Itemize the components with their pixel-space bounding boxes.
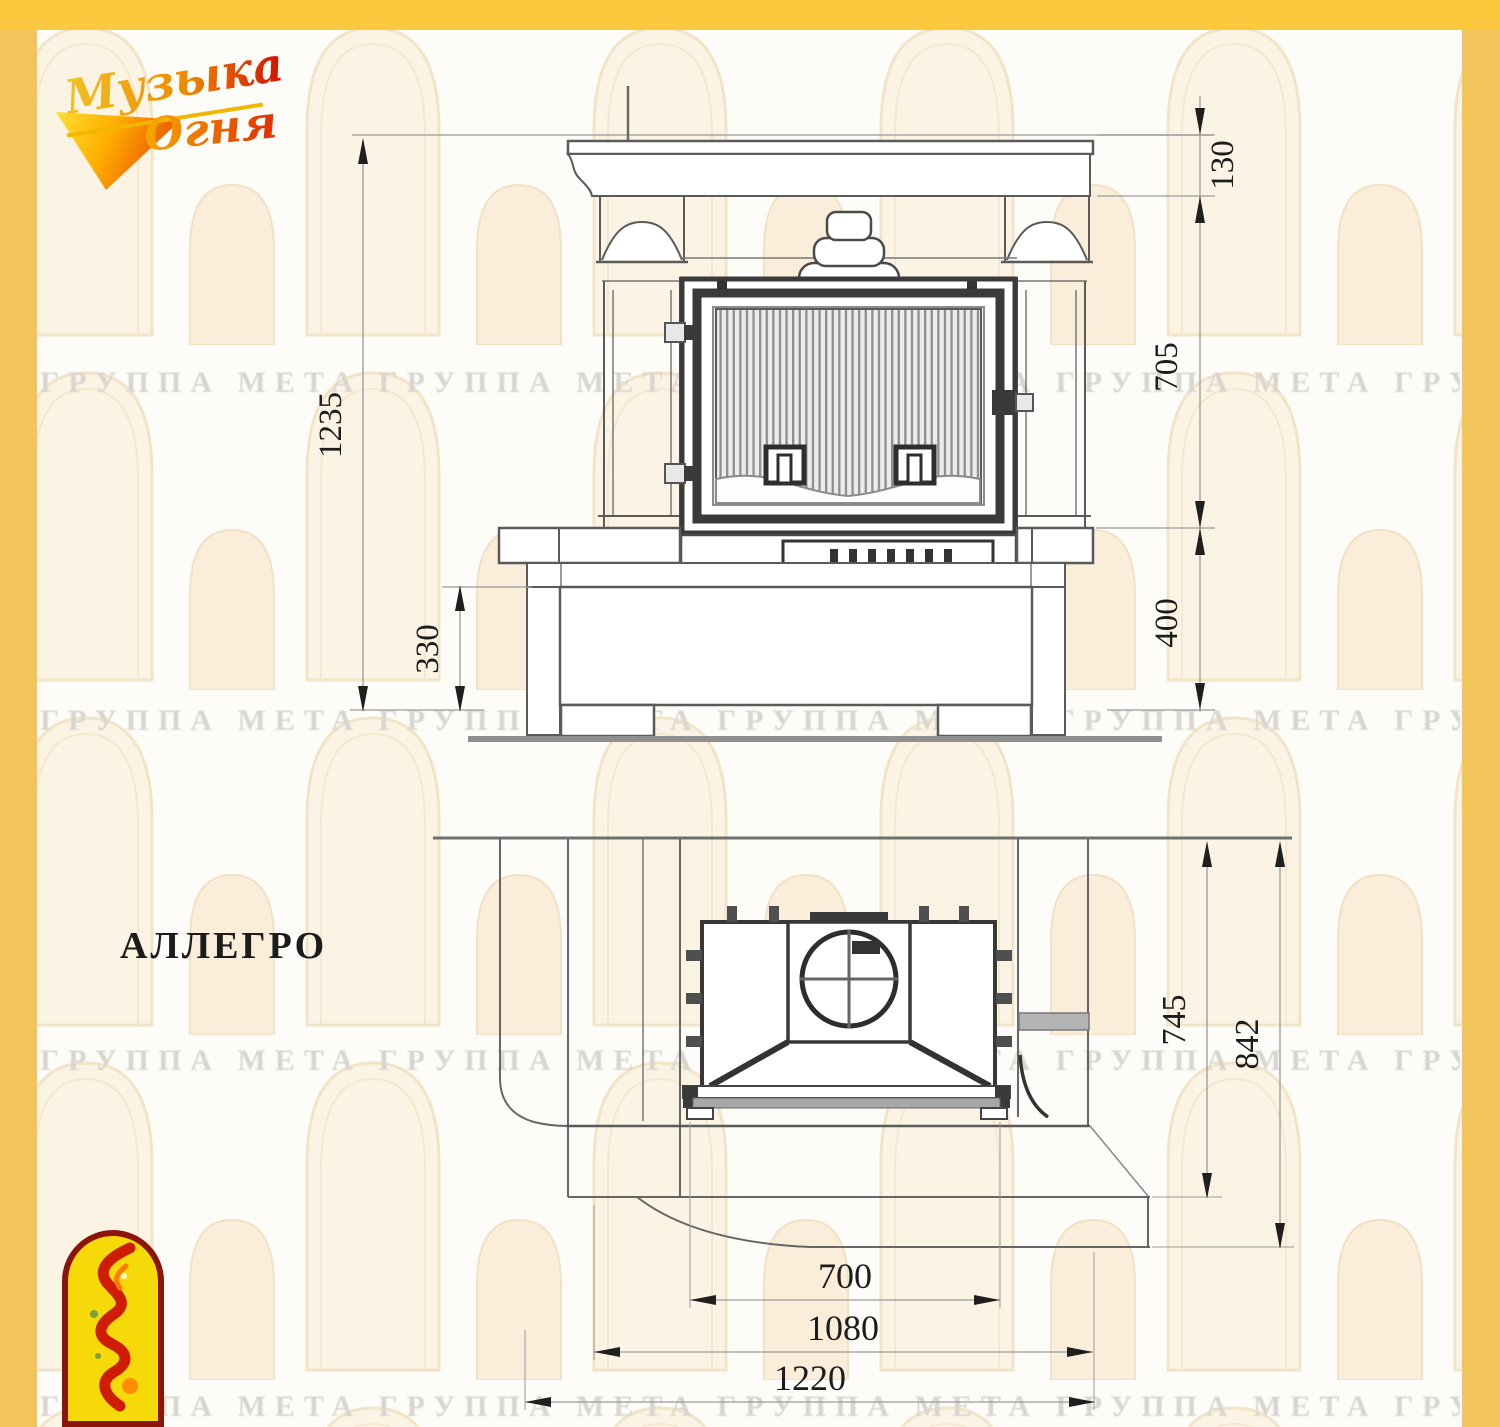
door-glass-grill bbox=[716, 309, 981, 503]
mantel-shelf bbox=[568, 141, 1093, 154]
left-column-capital bbox=[596, 196, 688, 281]
dim-label-plinth-front-height: 330 bbox=[410, 624, 446, 674]
andiron-right bbox=[896, 447, 934, 483]
dim-label-portal-width: 1080 bbox=[807, 1308, 879, 1348]
fireplace-technical-drawing: 1235 330 130 705 400 bbox=[0, 0, 1500, 1427]
page: ГРУППА МЕТА ГРУППА МЕТА ГРУППА МЕТА ГРУП… bbox=[0, 0, 1500, 1427]
mantel-cornice bbox=[568, 154, 1090, 196]
firebox-door bbox=[665, 279, 1033, 533]
andiron-left bbox=[766, 447, 804, 483]
frame-band-top bbox=[0, 0, 1500, 30]
plan-firebox bbox=[683, 906, 1012, 1119]
dim-label-total-height: 1235 bbox=[313, 392, 349, 458]
dim-label-mantel-shelf-height: 130 bbox=[1205, 140, 1241, 190]
page-title: АЛЛЕГРО bbox=[120, 924, 327, 968]
plan-left-outer-edge bbox=[500, 838, 568, 1126]
base-plinth bbox=[527, 563, 1065, 736]
dim-label-total-depth: 842 bbox=[1229, 1019, 1266, 1070]
brand-logo: Музыка Огня bbox=[50, 50, 285, 185]
plan-step-curve bbox=[637, 1197, 810, 1247]
left-column-shaft bbox=[598, 277, 686, 528]
door-handle bbox=[992, 390, 1033, 415]
dim-label-firebox-zone-height: 705 bbox=[1149, 342, 1185, 392]
fire-dancer-emblem-icon bbox=[62, 1230, 164, 1427]
door-screw bbox=[967, 281, 977, 290]
front-view-drawing bbox=[352, 86, 1213, 739]
right-column-capital bbox=[1001, 196, 1093, 281]
plan-right-corner-curve bbox=[1020, 1055, 1048, 1117]
frame-band-right bbox=[1462, 30, 1500, 1427]
plan-door-front bbox=[683, 1086, 1010, 1119]
dim-label-total-width: 1220 bbox=[774, 1358, 846, 1398]
door-screw bbox=[717, 281, 727, 290]
dim-label-firebox-front-width: 700 bbox=[818, 1256, 872, 1296]
frame-band-left bbox=[0, 30, 37, 1427]
dim-label-base-height: 400 bbox=[1149, 598, 1185, 648]
dim-label-mantel-depth: 745 bbox=[1156, 995, 1193, 1046]
plan-side-ledge bbox=[1019, 1013, 1089, 1030]
